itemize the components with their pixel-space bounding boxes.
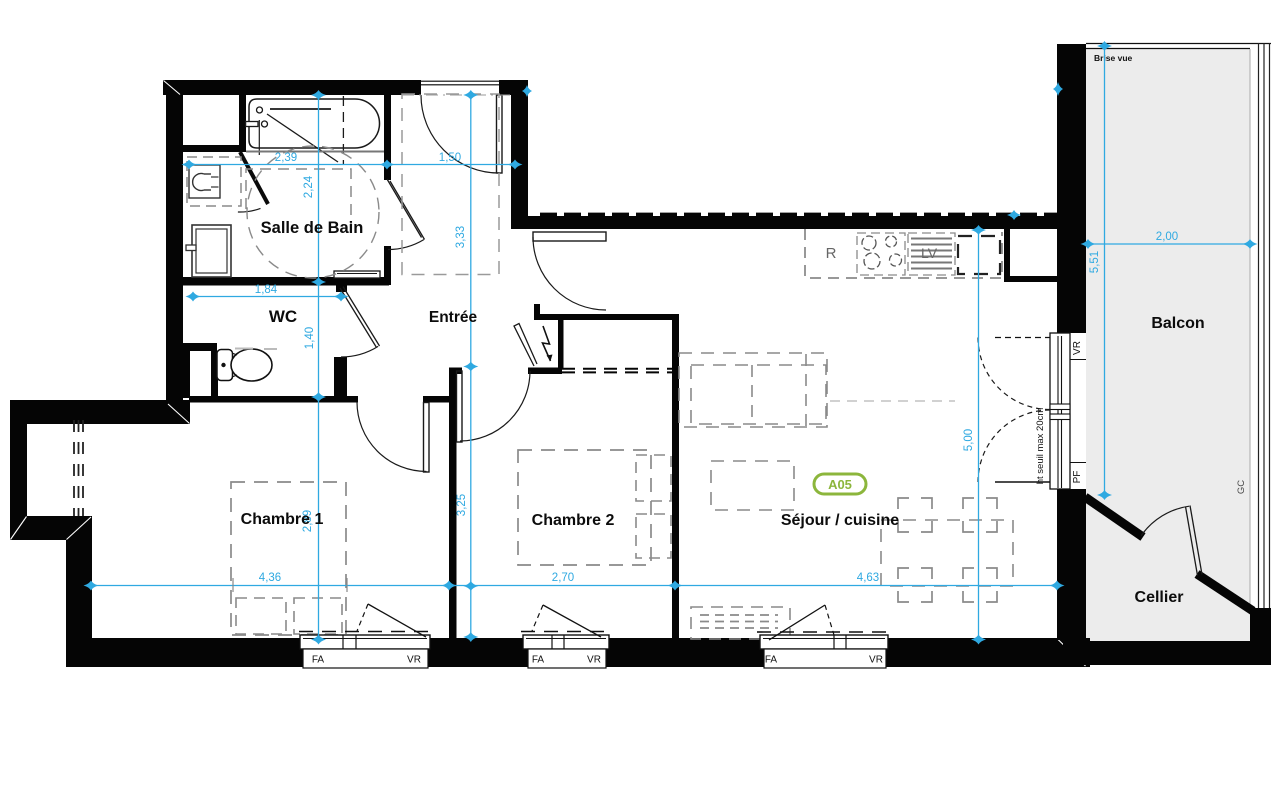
svg-text:4,36: 4,36 <box>259 572 281 584</box>
svg-text:2,24: 2,24 <box>303 175 315 198</box>
svg-text:2,00: 2,00 <box>1156 231 1178 243</box>
svg-text:FA: FA <box>765 655 778 666</box>
svg-text:WC: WC <box>269 307 297 326</box>
svg-text:VR: VR <box>869 655 883 666</box>
svg-text:VR: VR <box>407 655 421 666</box>
svg-text:Séjour / cuisine: Séjour / cuisine <box>781 512 899 529</box>
svg-text:Salle de Bain: Salle de Bain <box>261 219 364 237</box>
svg-text:2,70: 2,70 <box>552 572 574 584</box>
svg-text:A05: A05 <box>828 477 852 492</box>
svg-text:2,39: 2,39 <box>275 152 297 164</box>
svg-text:3,25: 3,25 <box>456 494 468 516</box>
svg-text:3,33: 3,33 <box>455 226 467 248</box>
svg-text:1,50: 1,50 <box>439 152 461 164</box>
svg-text:PF: PF <box>1072 471 1083 484</box>
svg-text:Chambre 1: Chambre 1 <box>241 511 324 528</box>
svg-text:R: R <box>826 245 837 262</box>
svg-text:Chambre 2: Chambre 2 <box>532 512 615 529</box>
svg-text:GC: GC <box>1236 480 1247 494</box>
svg-text:4,63: 4,63 <box>857 572 879 584</box>
svg-text:VR: VR <box>587 655 601 666</box>
svg-text:LV: LV <box>921 245 938 261</box>
svg-text:FA: FA <box>532 655 545 666</box>
svg-text:FA: FA <box>312 655 325 666</box>
svg-text:1,40: 1,40 <box>304 327 316 349</box>
svg-text:5,00: 5,00 <box>963 429 975 451</box>
svg-text:Balcon: Balcon <box>1151 315 1204 332</box>
svg-text:Entrée: Entrée <box>429 309 478 326</box>
svg-text:1,84: 1,84 <box>255 284 278 296</box>
svg-text:VR: VR <box>1072 341 1083 355</box>
svg-text:Cellier: Cellier <box>1135 589 1184 606</box>
svg-text:ht seuil max 20cm: ht seuil max 20cm <box>1035 408 1046 485</box>
svg-text:5,51: 5,51 <box>1089 251 1101 273</box>
svg-text:Brise vue: Brise vue <box>1094 53 1133 63</box>
